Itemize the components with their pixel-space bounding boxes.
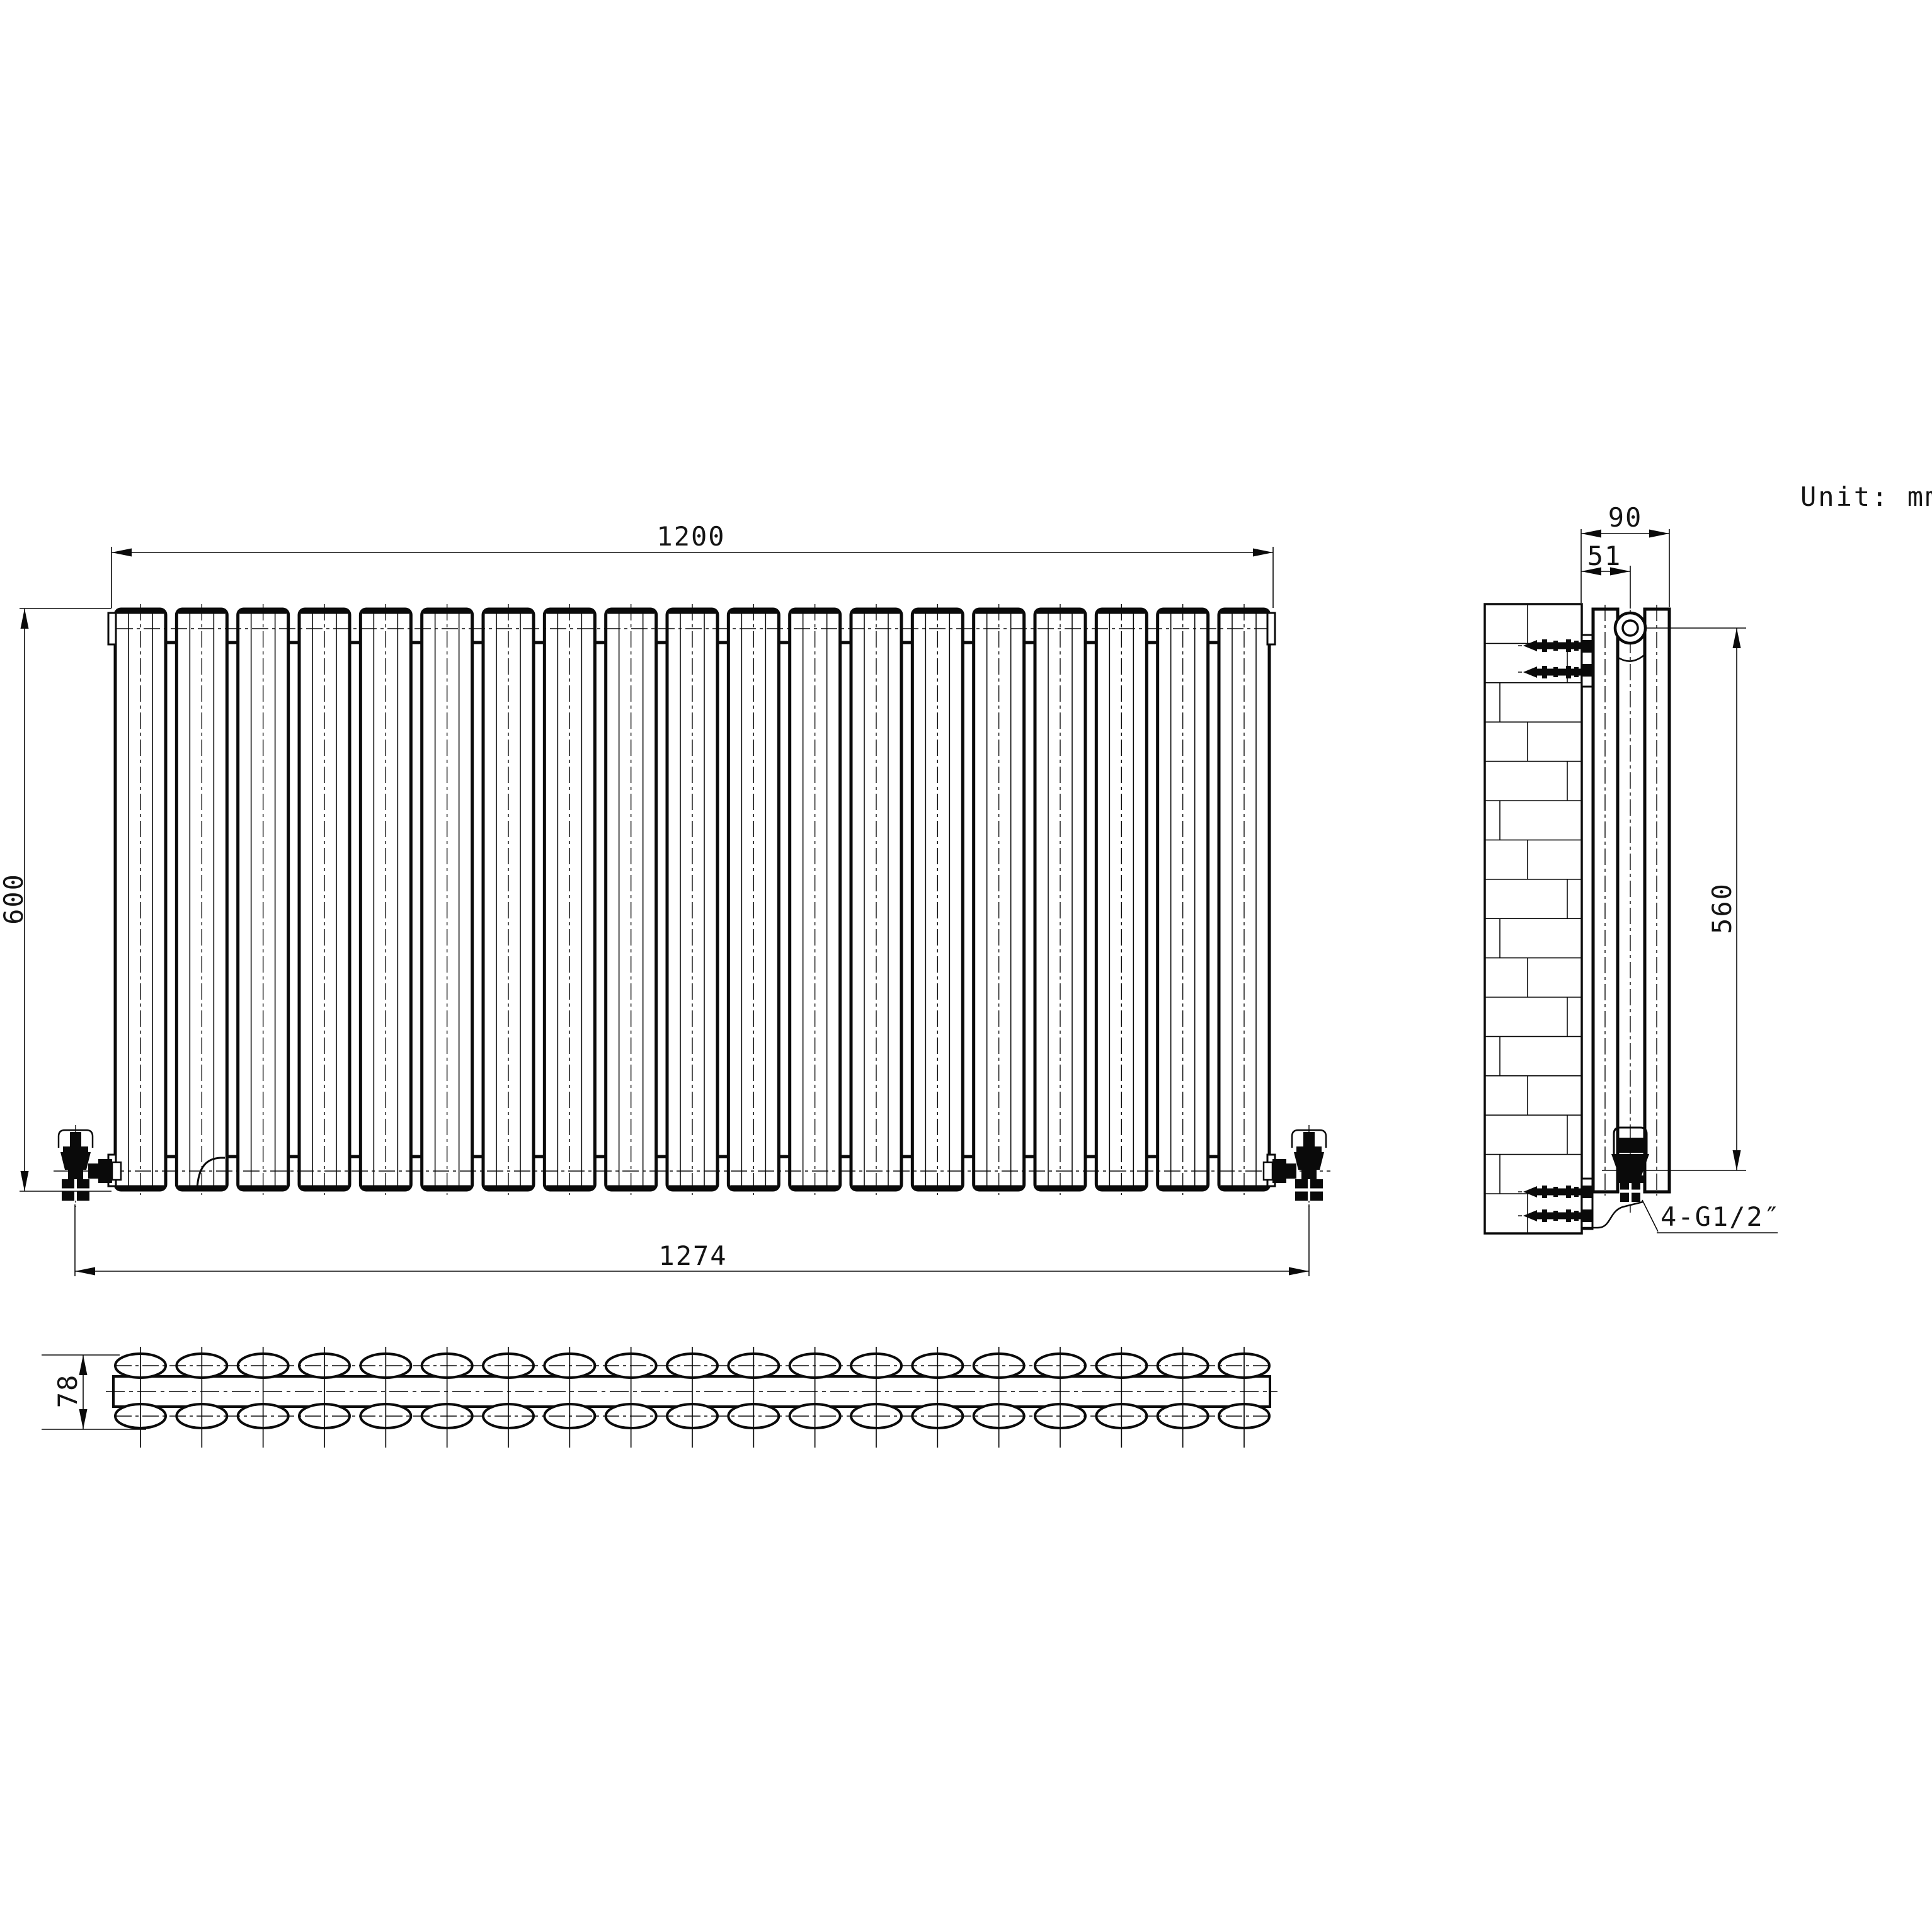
dim-label-plan-depth: 78 [52, 1374, 83, 1409]
radiator-technical-drawing: Unit: mm 1200 600 1274 90 51 560 4-G1/2″… [0, 0, 1932, 1932]
dim-label-port-span: 560 [1706, 883, 1737, 934]
radiator-panel [238, 604, 289, 1195]
front-view [54, 604, 1330, 1195]
dim-label-wall-offset: 51 [1587, 540, 1622, 571]
radiator-panel [606, 604, 656, 1195]
radiator-panel [1219, 604, 1269, 1195]
radiator-panel [912, 604, 963, 1195]
radiator-panel [1096, 604, 1146, 1195]
dim-label-side-depth: 90 [1608, 502, 1643, 533]
radiator-panel [299, 604, 350, 1195]
dim-label-front-height: 600 [0, 873, 29, 925]
radiator-panel [544, 604, 595, 1195]
radiator-panel [1158, 604, 1208, 1195]
end-tab [1267, 613, 1275, 644]
radiator-panel [422, 604, 472, 1195]
brick-wall [1485, 604, 1582, 1233]
radiator-panel [790, 604, 840, 1195]
radiator-panel [851, 604, 901, 1195]
unit-label: Unit: mm [1800, 481, 1932, 512]
dim-label-valve-span: 1274 [658, 1240, 727, 1271]
end-tab [108, 613, 116, 644]
radiator-panel [1035, 604, 1085, 1195]
radiator-panel [728, 604, 779, 1195]
radiator-panel [483, 604, 534, 1195]
radiator-panel [176, 604, 227, 1195]
radiator-panel [115, 604, 166, 1195]
radiator-panel [360, 604, 411, 1195]
radiator-panel [974, 604, 1024, 1195]
radiator-panel [667, 604, 717, 1195]
dim-label-front-width: 1200 [656, 521, 725, 552]
thread-spec-label: 4-G1/2″ [1660, 1201, 1781, 1232]
